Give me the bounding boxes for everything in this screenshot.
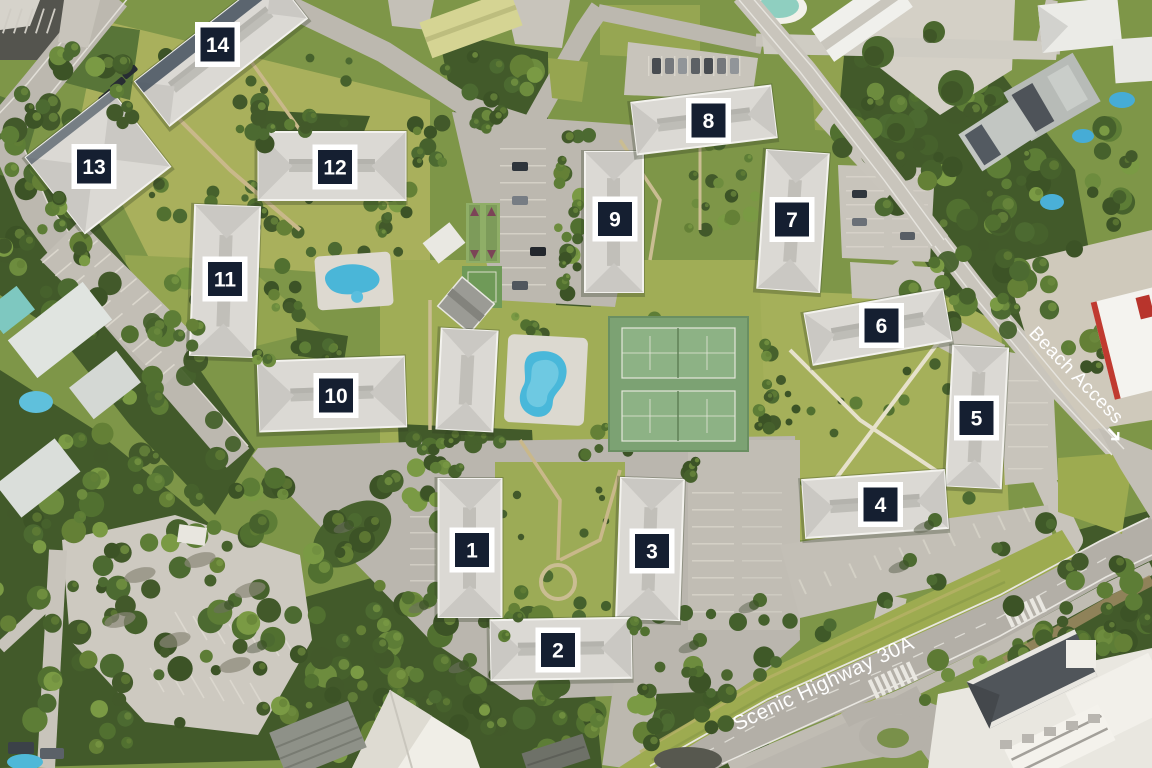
- svg-text:7: 7: [786, 209, 798, 232]
- svg-text:3: 3: [646, 541, 658, 564]
- svg-text:9: 9: [609, 209, 621, 232]
- svg-text:4: 4: [875, 494, 887, 517]
- svg-text:10: 10: [324, 385, 347, 408]
- svg-text:2: 2: [552, 640, 564, 663]
- svg-text:11: 11: [214, 269, 237, 292]
- svg-text:12: 12: [323, 157, 346, 180]
- svg-text:1: 1: [466, 540, 478, 563]
- svg-text:6: 6: [876, 315, 888, 338]
- svg-text:5: 5: [971, 408, 983, 431]
- svg-text:13: 13: [82, 156, 105, 179]
- svg-text:14: 14: [206, 34, 230, 57]
- svg-text:8: 8: [703, 110, 715, 133]
